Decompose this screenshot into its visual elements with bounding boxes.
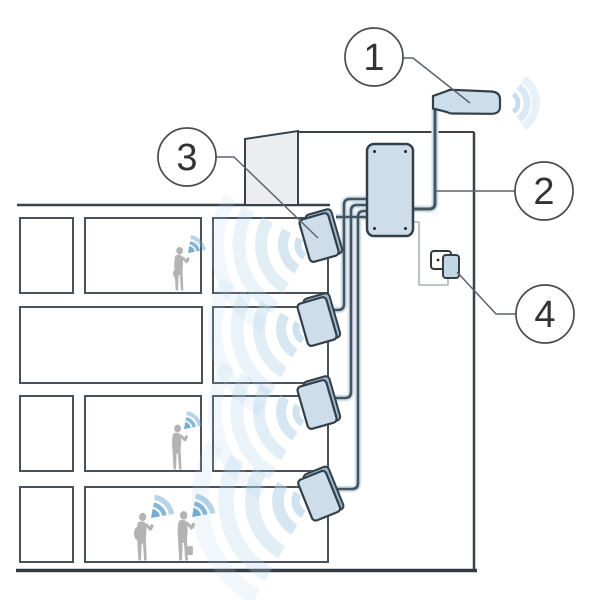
room [85,218,201,293]
callout-1: 1 [345,28,403,86]
callout-1-number: 1 [363,37,384,79]
room [20,396,73,471]
callout-2: 2 [515,162,573,220]
callout-3-number: 3 [176,137,197,179]
diagram-stage: 1 2 3 4 [0,0,600,600]
signal-amplifier [367,144,413,236]
room [20,307,202,383]
callout-2-number: 2 [533,171,554,213]
power-plug [443,255,459,278]
callout-4: 4 [516,285,574,343]
leader-4 [457,272,517,314]
callout-4-number: 4 [534,294,555,336]
room [85,396,201,471]
outdoor-signal-waves [513,79,536,127]
room [20,487,73,562]
signal-booster-diagram: 1 2 3 4 [0,0,600,600]
power-outlet [431,251,459,278]
callout-3: 3 [158,128,216,186]
room [20,218,73,293]
outdoor-antenna [433,90,500,114]
